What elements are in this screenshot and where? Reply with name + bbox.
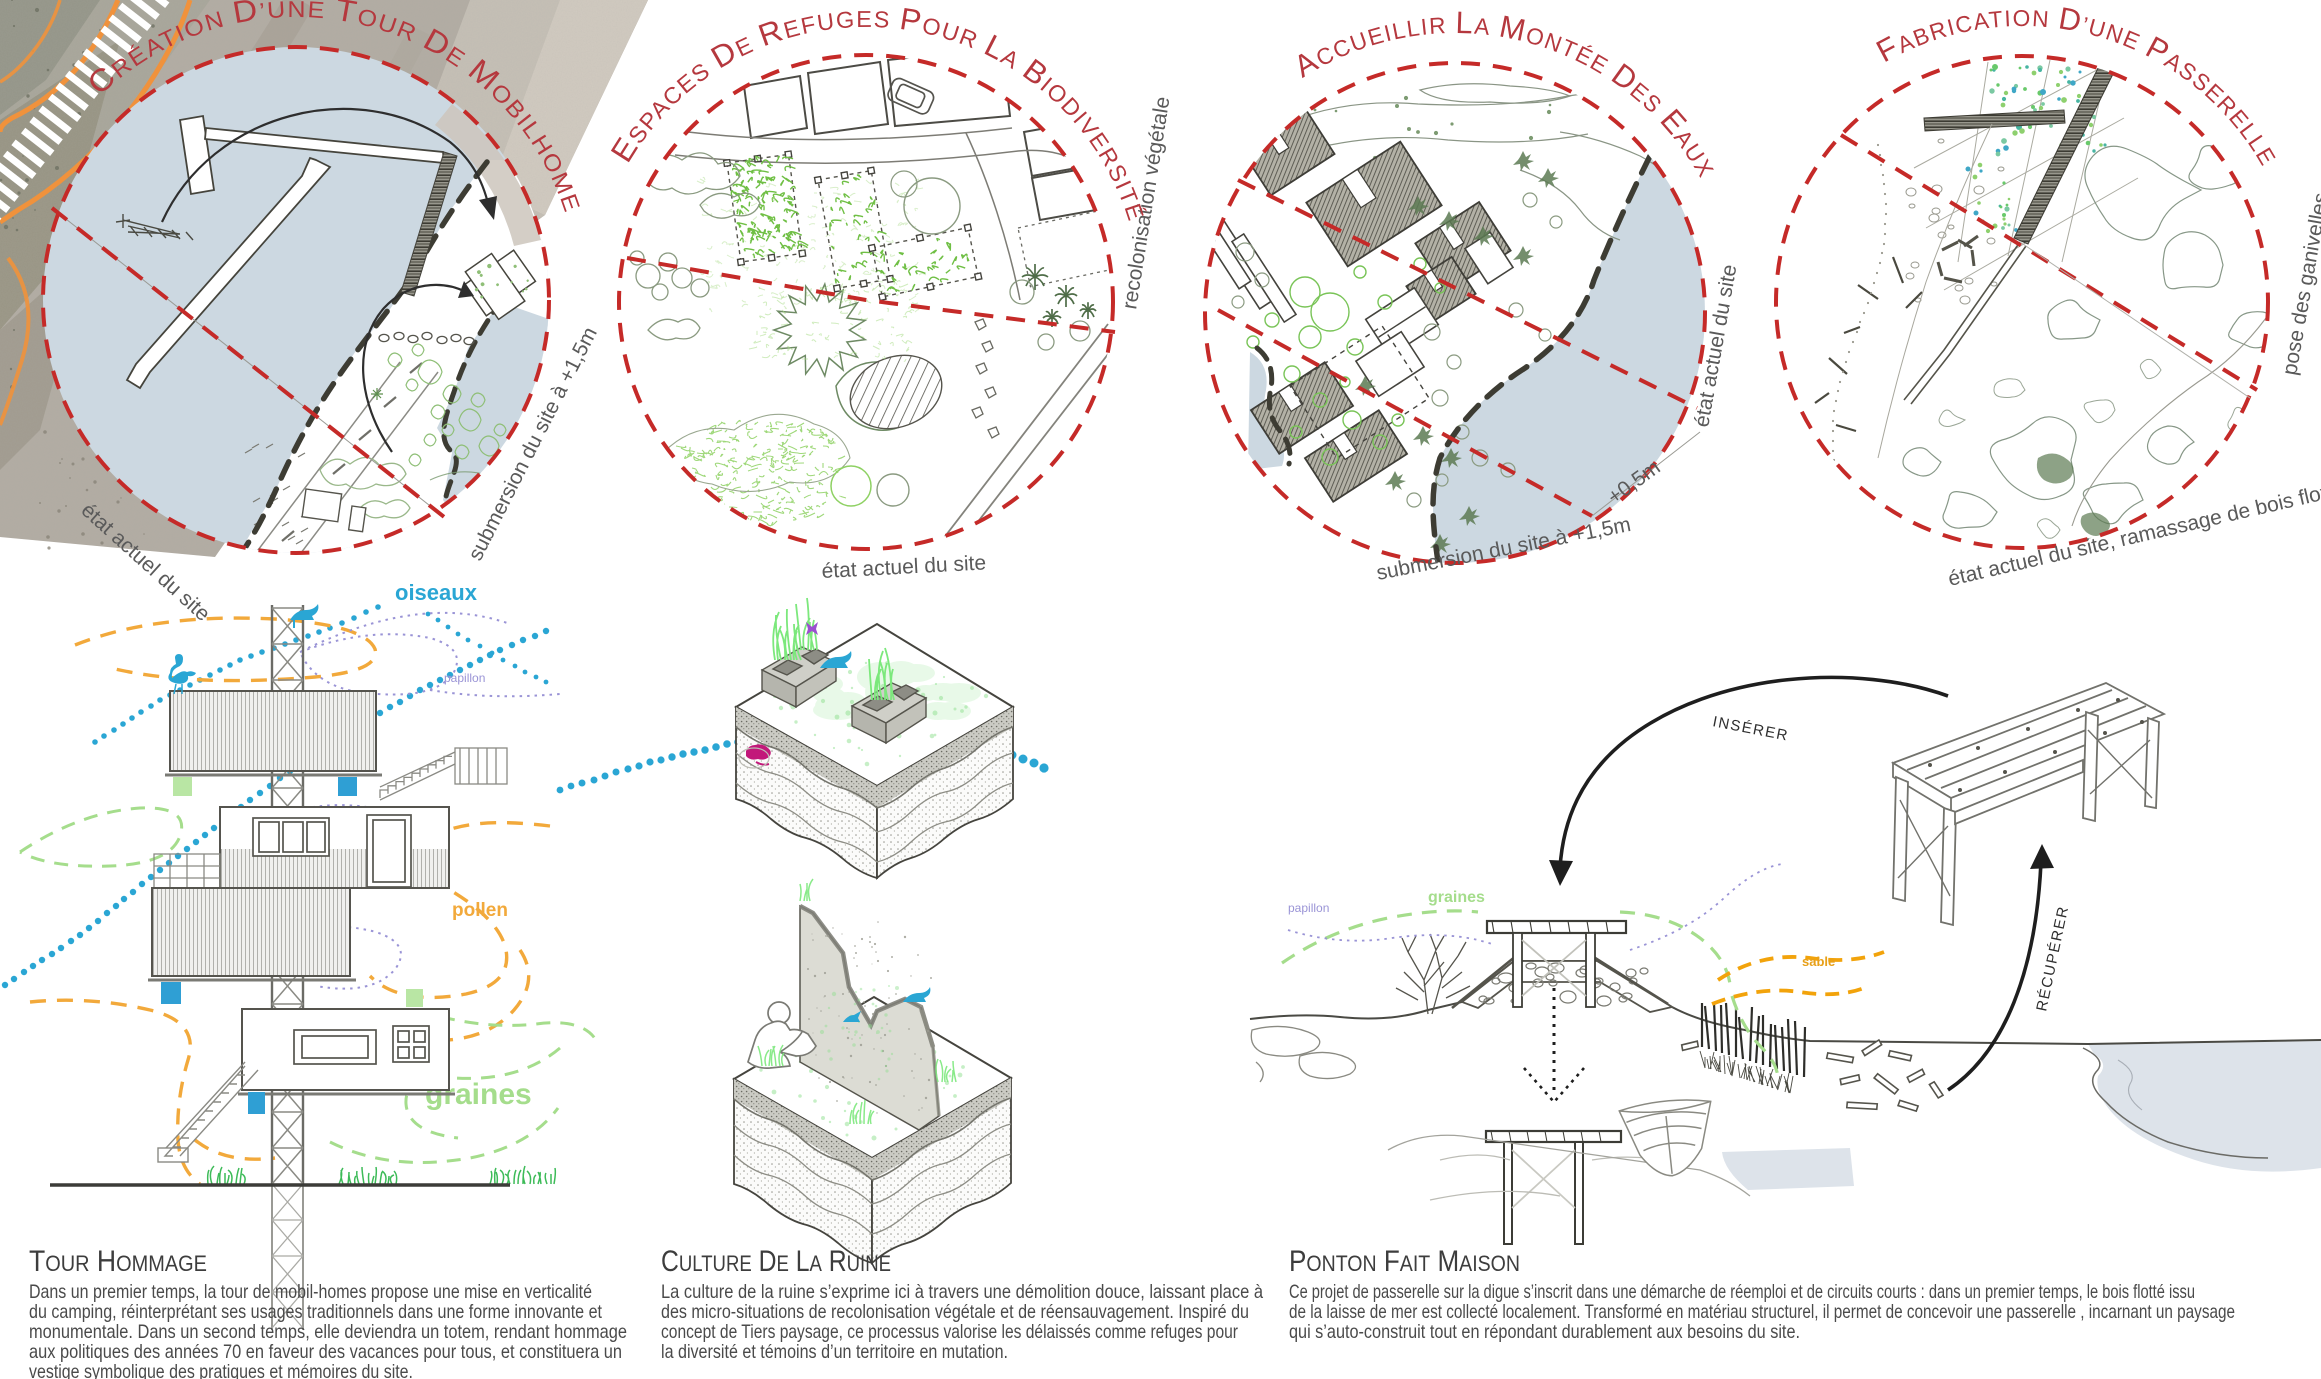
svg-text:papillon: papillon [444,671,485,685]
svg-text:Dans un premier temps, la tour: Dans un premier temps, la tour de mobil-… [29,1281,592,1303]
svg-text:Ce projet de passerelle sur la: Ce projet de passerelle sur la digue s’i… [1289,1281,2195,1303]
svg-text:La culture de la ruine s’expri: La culture de la ruine s’exprime ici à t… [661,1281,1263,1303]
svg-text:monumentale. Dans un second te: monumentale. Dans un second temps, elle … [29,1321,627,1343]
svg-text:sable: sable [1802,954,1835,969]
svg-text:des micro-situations de recolo: des micro-situations de recolonisation v… [661,1301,1249,1323]
svg-text:vestige symbolique des pratiqu: vestige symbolique des pratiques et mémo… [29,1361,413,1379]
svg-text:graines: graines [1428,889,1485,906]
svg-text:concept de Tiers paysage, ce p: concept de Tiers paysage, ce processus v… [661,1321,1238,1343]
svg-text:aux politiques des années 70 e: aux politiques des années 70 en faveur d… [29,1341,622,1363]
svg-text:pollen: pollen [452,900,508,921]
svg-text:qui s’auto-construit tout en r: qui s’auto-construit tout en répondant d… [1289,1321,1800,1343]
svg-text:papillon: papillon [1288,901,1329,915]
svg-text:de la laisse de mer est collec: de la laisse de mer est collecté localem… [1289,1301,2235,1323]
svg-text:oiseaux: oiseaux [395,580,478,605]
svg-text:du camping, réinterprétant ses: du camping, réinterprétant ses usages tr… [29,1301,602,1323]
svg-text:la diversité et témoins d’un t: la diversité et témoins d’un territoire … [661,1341,1008,1363]
